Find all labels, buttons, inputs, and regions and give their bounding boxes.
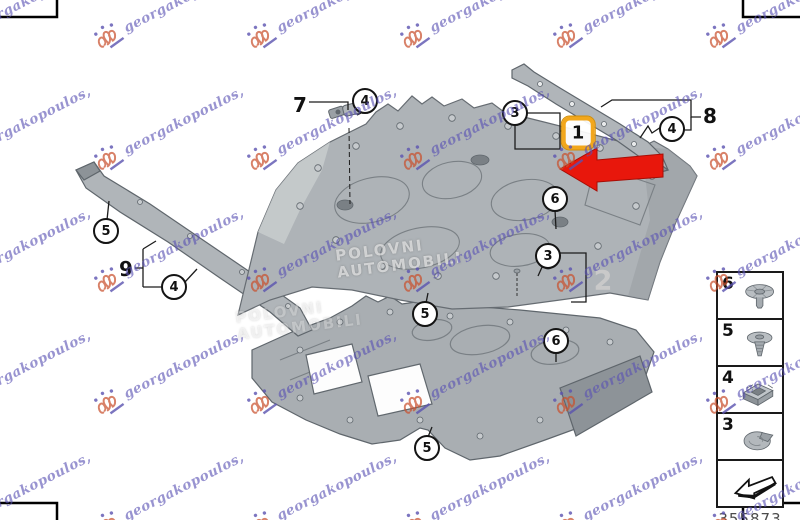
legend-cell-arrow	[716, 459, 784, 508]
direction-arrow-icon	[731, 468, 781, 504]
callout-1-3: 1	[562, 117, 595, 150]
callout-8-5: 8	[703, 104, 717, 128]
legend-cell-6: 6	[716, 271, 784, 320]
push-pin-icon	[735, 329, 781, 363]
parts-diagram-image: POLOVNI AUTOMOBILI POLOVNI AUTOMOBILI 74…	[0, 0, 800, 520]
clip-cap-icon	[735, 423, 781, 457]
callout-6-13: 6	[543, 328, 569, 354]
callout-5-9: 5	[93, 218, 119, 244]
callout-2-8: 2	[594, 266, 613, 297]
callout-7-0: 7	[293, 93, 307, 117]
callout-5-14: 5	[414, 435, 440, 461]
legend-number: 4	[722, 368, 734, 388]
callout-3-2: 3	[502, 100, 528, 126]
callout-5-12: 5	[412, 301, 438, 327]
callout-4-4: 4	[659, 116, 685, 142]
cage-nut-icon	[735, 376, 781, 410]
legend-number: 5	[722, 321, 734, 341]
legend-cell-4: 4	[716, 365, 784, 414]
callout-9-10: 9	[119, 257, 133, 281]
legend-number: 3	[722, 415, 734, 435]
legend-cell-3: 3	[716, 412, 784, 461]
callout-6-6: 6	[542, 186, 568, 212]
callout-3-7: 3	[535, 243, 561, 269]
legend-cell-5: 5	[716, 318, 784, 367]
diagram-part-number: 355873	[716, 510, 784, 520]
callout-4-1: 4	[352, 88, 378, 114]
callout-4-11: 4	[161, 274, 187, 300]
fastener-legend: 6 5 4	[716, 271, 784, 520]
legend-number: 6	[722, 274, 734, 294]
push-rivet-icon	[735, 282, 781, 316]
